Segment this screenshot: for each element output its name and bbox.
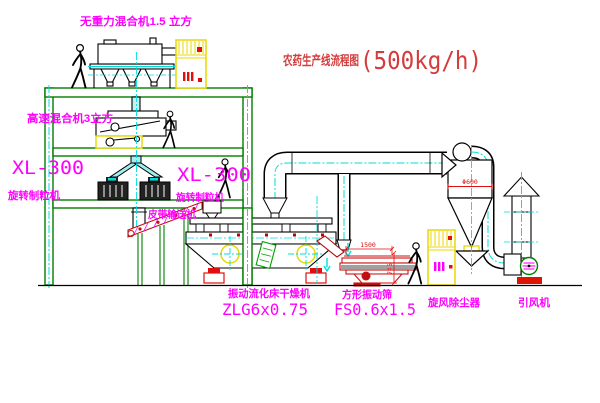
dryer-exhaust-flare xyxy=(263,198,287,213)
label-granulator-left-model: XL-300 xyxy=(12,157,84,179)
flow-arrow xyxy=(324,258,330,271)
building-mid-slab xyxy=(53,148,243,156)
label-fan-name: 引风机 xyxy=(518,296,551,309)
label-granulator-mid-name: 旋转制粒机 xyxy=(175,191,224,204)
label-dryer-name: 振动流化床干燥机 xyxy=(228,287,310,300)
label-cyclone-name: 旋风除尘器 xyxy=(427,296,480,309)
dryer-feet xyxy=(204,268,326,283)
dim-cyclone-diameter: Φ600 xyxy=(462,178,478,186)
label-dryer-model: ZLG6x0.75 xyxy=(222,300,308,319)
person-figure xyxy=(72,45,86,88)
label-belt-conveyor: 皮带输送机 xyxy=(147,208,196,221)
cyclone-hopper xyxy=(456,251,488,266)
label-high-speed-mixer: 高速混合机3立方 xyxy=(27,111,113,125)
indicator-lamp xyxy=(448,236,452,240)
dryer-top-deck xyxy=(190,218,332,224)
dim-screen-height: 745 xyxy=(386,263,394,275)
dim-screen-length: 1500 xyxy=(360,241,376,249)
process-flow-diagram: 农药生产线流程图 (500kg/h) 无重力混合机1.5 立方 高速混合机3立方… xyxy=(0,0,600,403)
fluid-bed-dryer xyxy=(186,196,336,283)
y-pipe xyxy=(110,156,162,177)
dryer-springs xyxy=(196,224,326,232)
control-cabinet-top xyxy=(176,40,206,88)
vibrating-screen xyxy=(340,246,416,286)
cyclone-outlet-elbow xyxy=(453,143,471,161)
indicator-lamp xyxy=(197,47,202,52)
granulator-right-machine xyxy=(140,177,170,200)
diagram-capacity: (500kg/h) xyxy=(360,46,482,75)
granulator-left-machine xyxy=(98,177,128,200)
diagram-canvas: 农药生产线流程图 (500kg/h) 无重力混合机1.5 立方 高速混合机3立方… xyxy=(0,0,600,403)
diagram-title: 农药生产线流程图 xyxy=(282,53,359,68)
building-roof-slab xyxy=(45,88,252,97)
label-granulator-mid-model: XL-300 xyxy=(177,164,251,186)
label-gravity-mixer: 无重力混合机1.5 立方 xyxy=(79,14,192,28)
control-cabinet-bottom xyxy=(428,230,455,285)
label-granulator-left-name: 旋转制粒机 xyxy=(7,189,60,202)
screen-motor xyxy=(362,272,371,281)
label-screen-model: FS0.6x1.5 xyxy=(334,300,416,319)
fan-base xyxy=(517,277,542,284)
gravity-mixer-machine xyxy=(88,38,176,88)
